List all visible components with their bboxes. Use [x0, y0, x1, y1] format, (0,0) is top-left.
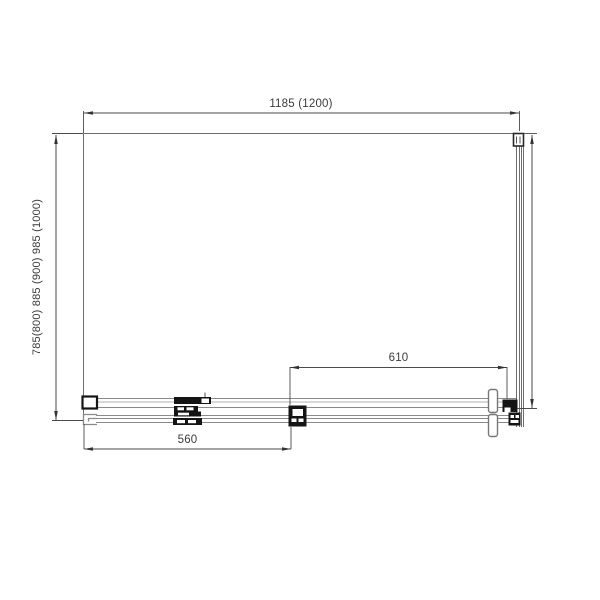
dim-door-opening-label: 610	[290, 351, 507, 365]
door-track-lines	[96, 399, 519, 423]
dim-left-depth-label: 785(800) 885 (900) 985 (1000)	[30, 162, 44, 392]
wall-bracket-top-right	[514, 134, 524, 147]
roller-assembly-right	[503, 400, 521, 426]
wall-profile-left	[83, 397, 98, 409]
dim-door-overlap-label: 560	[84, 433, 291, 447]
enclosure-outline	[84, 134, 524, 425]
dim-top-width-label: 1185 (1200)	[83, 97, 519, 111]
guide-profile-left	[84, 415, 98, 425]
roller-assembly-middle	[289, 406, 307, 427]
dimension-arrowheads	[54, 111, 534, 451]
right-side-panel	[517, 134, 524, 428]
door-handle	[489, 390, 498, 437]
shower-enclosure-plan-drawing	[0, 0, 600, 600]
technical-drawing-page: 1185 (1200) 785(800) 885 (900) 985 (1000…	[0, 0, 600, 600]
roller-assembly-left	[173, 393, 211, 426]
